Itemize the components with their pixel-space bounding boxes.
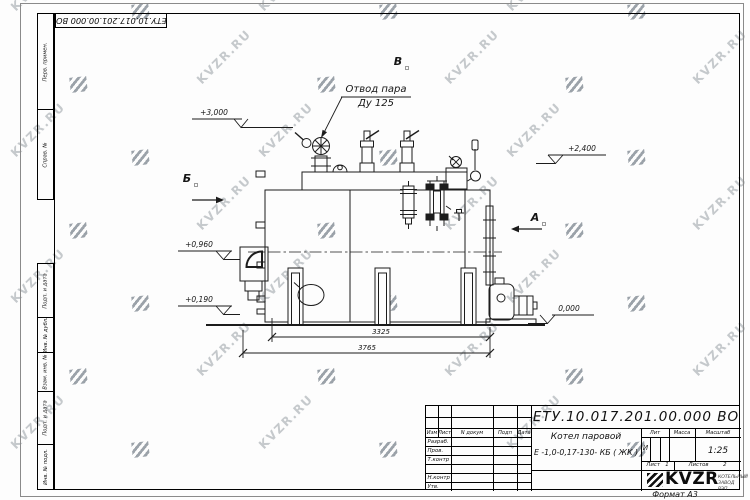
- section-mark-a: [542, 222, 546, 226]
- section-label-b: Б: [180, 172, 194, 185]
- level-gauge-tube: [400, 181, 417, 229]
- boiler-drawing-linework: [0, 0, 750, 500]
- gauge-dome: [333, 165, 347, 172]
- elevation-0000: 0,000: [548, 304, 590, 313]
- section-arrow-b: [192, 197, 224, 204]
- fan-unit: [486, 278, 537, 325]
- dimension-3765: 3765: [343, 344, 391, 352]
- elevation-0190: +0,190: [176, 295, 222, 304]
- section-label-a: А: [528, 211, 542, 224]
- steam-valve: [295, 133, 331, 173]
- section-label-v: В: [391, 55, 405, 68]
- drawing-sheet: KVZR.RUKVZR.RUKVZR.RUKVZR.RUKVZR.RUKVZR.…: [0, 0, 750, 500]
- elevation-2400: +2,400: [558, 144, 606, 153]
- elevation-3000: +3,000: [190, 108, 238, 117]
- callout-steam-outlet: Отвод пара: [341, 84, 411, 95]
- support-legs: [288, 268, 476, 325]
- elevation-0960: +0,960: [176, 240, 222, 249]
- callout-du125: Ду 125: [341, 98, 411, 109]
- section-mark-b: [194, 183, 198, 187]
- dimension-3325: 3325: [357, 328, 405, 336]
- t-fitting: [454, 210, 464, 222]
- format-label: Формат А3: [637, 490, 713, 499]
- thermometer: [468, 140, 481, 181]
- section-mark-v: [405, 66, 409, 70]
- level-gauge-column: [426, 176, 451, 231]
- section-arrow-a: [511, 226, 542, 233]
- safety-valves: [360, 131, 419, 173]
- burner-unit: [240, 247, 268, 300]
